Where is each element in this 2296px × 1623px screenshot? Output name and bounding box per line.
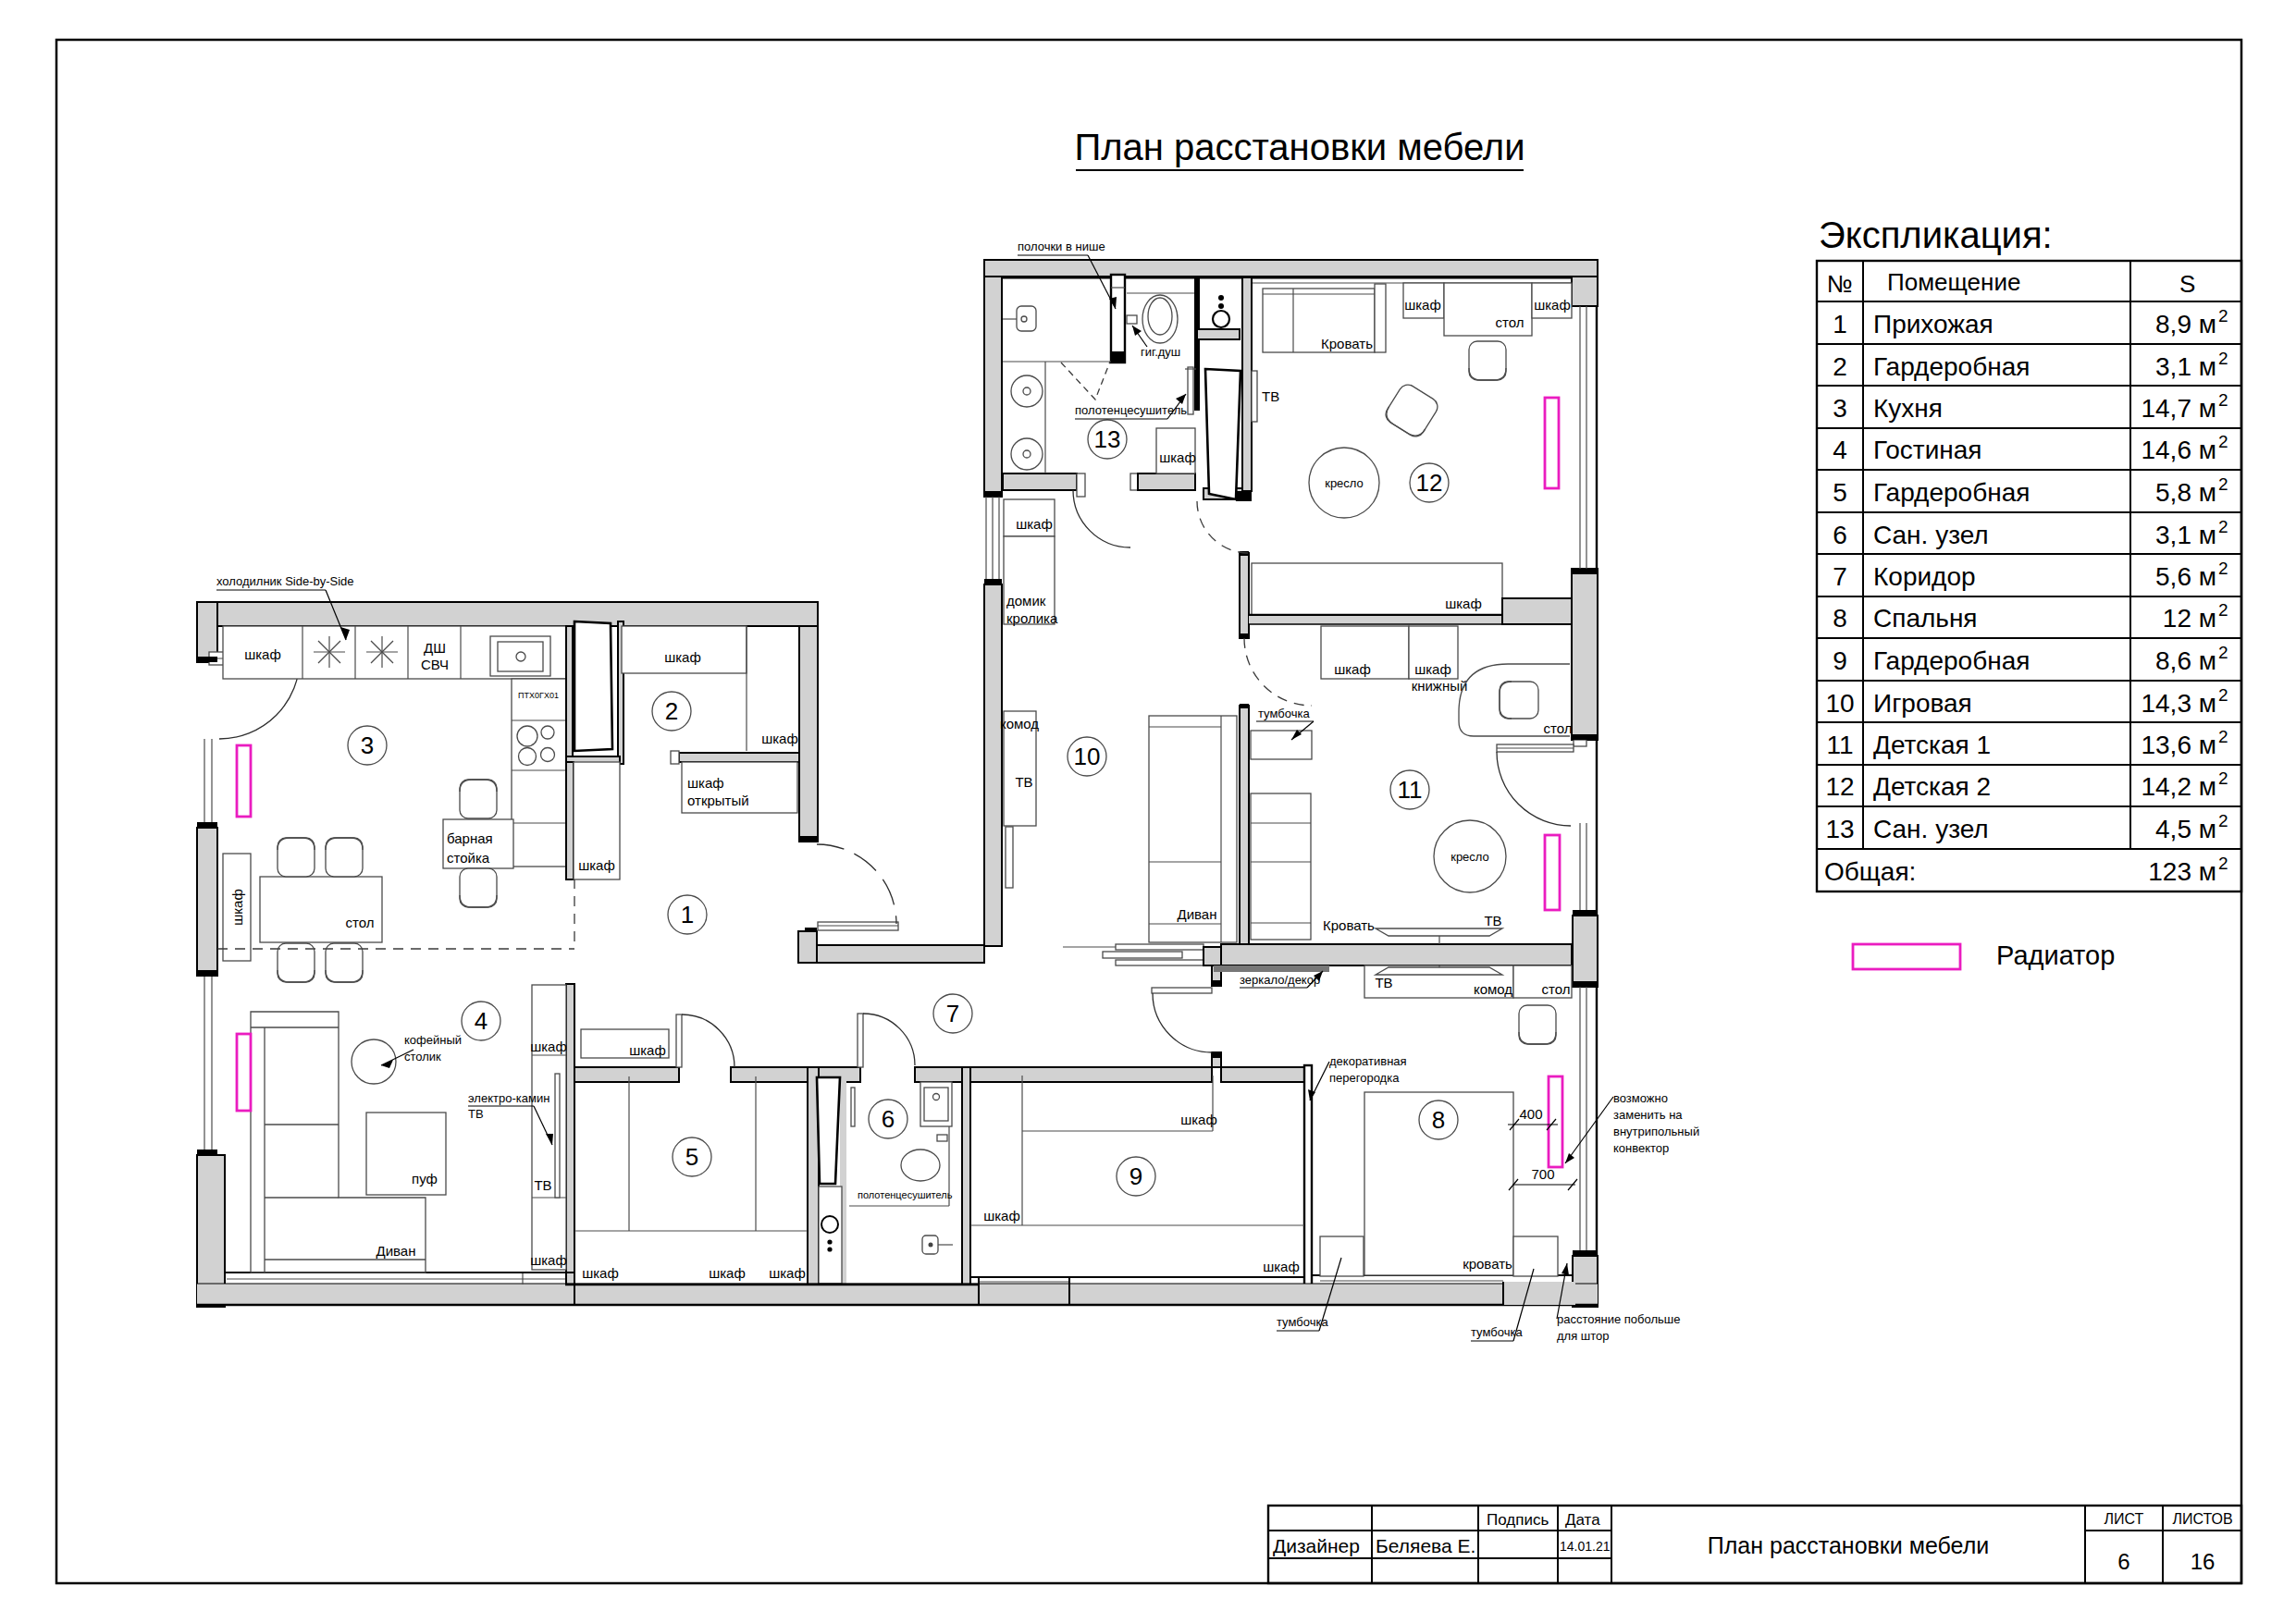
svg-text:2: 2: [1833, 352, 1847, 381]
svg-text:4,5 м: 4,5 м: [2155, 815, 2216, 843]
svg-text:Диван: Диван: [376, 1243, 416, 1259]
svg-text:Гардеробная: Гардеробная: [1873, 478, 2030, 507]
svg-text:ТВ: ТВ: [1375, 975, 1392, 990]
svg-text:Кровать: Кровать: [1321, 336, 1373, 351]
svg-text:2: 2: [2218, 600, 2228, 620]
svg-text:Радиатор: Радиатор: [1996, 941, 2115, 970]
svg-text:3,1 м: 3,1 м: [2155, 352, 2216, 381]
svg-text:9: 9: [1833, 646, 1847, 675]
svg-text:3: 3: [1833, 394, 1847, 423]
svg-text:шкаф: шкаф: [709, 1265, 746, 1281]
svg-text:внутрипольный: внутрипольный: [1613, 1125, 1699, 1138]
svg-text:заменить на: заменить на: [1613, 1108, 1683, 1122]
svg-text:3,1 м: 3,1 м: [2155, 521, 2216, 549]
svg-text:Дизайнер: Дизайнер: [1273, 1535, 1360, 1556]
svg-text:барная: барная: [447, 830, 493, 846]
svg-text:400: 400: [1519, 1106, 1542, 1122]
svg-text:11: 11: [1826, 731, 1853, 759]
svg-text:5,6 м: 5,6 м: [2155, 562, 2216, 591]
svg-text:6: 6: [2117, 1549, 2129, 1574]
svg-text:2: 2: [2218, 306, 2228, 326]
svg-text:Диван: Диван: [1178, 906, 1217, 922]
svg-text:10: 10: [1825, 689, 1854, 718]
svg-text:1: 1: [681, 901, 694, 928]
svg-text:декоративная: декоративная: [1329, 1054, 1407, 1068]
svg-text:7: 7: [946, 1000, 959, 1027]
svg-text:кресло: кресло: [1325, 476, 1364, 490]
svg-text:домик: домик: [1006, 593, 1046, 609]
svg-text:шкаф: шкаф: [1180, 1112, 1217, 1127]
svg-text:4: 4: [1833, 436, 1847, 464]
svg-text:2: 2: [2218, 390, 2228, 410]
svg-text:Кухня: Кухня: [1873, 394, 1943, 423]
svg-text:S: S: [2179, 270, 2195, 298]
svg-text:12 м: 12 м: [2163, 604, 2216, 633]
svg-text:13: 13: [1094, 425, 1121, 453]
svg-text:шкаф: шкаф: [983, 1208, 1020, 1223]
svg-text:стол: стол: [1496, 314, 1524, 330]
svg-text:Сан. узел: Сан. узел: [1873, 521, 1989, 549]
svg-text:13: 13: [1825, 815, 1854, 843]
svg-text:8: 8: [1833, 604, 1847, 633]
svg-text:7: 7: [1833, 562, 1847, 591]
svg-text:14,7 м: 14,7 м: [2141, 394, 2216, 423]
svg-text:Спальня: Спальня: [1873, 604, 1978, 633]
svg-text:шкаф: шкаф: [1534, 297, 1571, 313]
svg-text:перегородка: перегородка: [1329, 1071, 1400, 1085]
svg-text:шкаф: шкаф: [687, 775, 724, 791]
svg-text:ТВ: ТВ: [1015, 774, 1032, 790]
svg-text:2: 2: [2218, 559, 2228, 578]
svg-text:расстояние побольше: расстояние побольше: [1557, 1312, 1681, 1326]
svg-text:ЛИСТ: ЛИСТ: [2105, 1511, 2144, 1527]
svg-text:123 м: 123 м: [2148, 857, 2216, 886]
svg-text:для штор: для штор: [1557, 1329, 1610, 1343]
svg-text:10: 10: [1074, 743, 1101, 770]
svg-text:6: 6: [882, 1105, 895, 1133]
svg-text:пуф: пуф: [412, 1171, 438, 1187]
svg-text:700: 700: [1531, 1166, 1554, 1182]
svg-text:зеркало/декор: зеркало/декор: [1240, 973, 1320, 987]
svg-text:12: 12: [1825, 772, 1854, 801]
svg-text:полотенцесушитель: полотенцесушитель: [858, 1189, 953, 1200]
svg-text:комод: комод: [1474, 981, 1512, 997]
svg-text:стойка: стойка: [447, 850, 490, 866]
svg-text:шкаф: шкаф: [1263, 1259, 1300, 1274]
svg-text:ТВ: ТВ: [1484, 913, 1501, 928]
svg-text:2: 2: [2218, 685, 2228, 705]
svg-text:Общая:: Общая:: [1824, 857, 1916, 886]
svg-text:полочки в нише: полочки в нише: [1018, 240, 1105, 253]
svg-text:2: 2: [665, 697, 678, 725]
svg-text:шкаф: шкаф: [1016, 516, 1053, 532]
svg-text:тумбочка: тумбочка: [1471, 1325, 1523, 1339]
svg-text:2: 2: [2218, 432, 2228, 451]
svg-text:8,9 м: 8,9 м: [2155, 310, 2216, 338]
svg-text:14,2 м: 14,2 м: [2141, 772, 2216, 801]
svg-text:1: 1: [1833, 310, 1847, 338]
svg-text:2: 2: [2218, 768, 2228, 788]
svg-text:2: 2: [2218, 643, 2228, 662]
svg-text:16: 16: [2191, 1549, 2216, 1574]
svg-text:ТВ: ТВ: [468, 1107, 484, 1121]
svg-text:шкаф: шкаф: [582, 1265, 619, 1281]
svg-text:холодилник Side-by-Side: холодилник Side-by-Side: [216, 574, 354, 588]
svg-text:кролика: кролика: [1006, 610, 1058, 626]
svg-text:стол: стол: [346, 915, 375, 930]
svg-text:Гостиная: Гостиная: [1873, 436, 1982, 464]
svg-text:шкаф: шкаф: [629, 1042, 666, 1058]
svg-text:Коридор: Коридор: [1873, 562, 1976, 591]
svg-text:шкаф: шкаф: [664, 649, 701, 665]
svg-text:кровать: кровать: [1463, 1256, 1512, 1272]
svg-text:шкаф: шкаф: [761, 731, 798, 746]
svg-text:5,8 м: 5,8 м: [2155, 478, 2216, 507]
svg-text:План расстановки мебели: План расстановки мебели: [1708, 1532, 1989, 1558]
svg-text:тумбочка: тумбочка: [1277, 1315, 1328, 1329]
svg-text:8: 8: [1432, 1106, 1445, 1134]
svg-text:Гардеробная: Гардеробная: [1873, 352, 2030, 381]
svg-text:Экспликация:: Экспликация:: [1819, 215, 2053, 255]
svg-text:книжный: книжный: [1412, 678, 1468, 694]
svg-text:Дата: Дата: [1565, 1511, 1600, 1529]
svg-text:9: 9: [1129, 1162, 1142, 1190]
svg-text:2: 2: [2218, 349, 2228, 368]
svg-text:4: 4: [475, 1007, 488, 1035]
svg-text:12: 12: [1416, 469, 1443, 497]
svg-text:комод: комод: [1000, 716, 1039, 732]
svg-text:План расстановки мебели: План расстановки мебели: [1074, 127, 1524, 167]
svg-text:стол: стол: [1542, 981, 1571, 997]
svg-text:Детская 1: Детская 1: [1873, 731, 1991, 759]
svg-text:3: 3: [361, 732, 374, 759]
svg-text:электро-камин: электро-камин: [468, 1091, 549, 1105]
svg-text:кресло: кресло: [1450, 850, 1489, 864]
svg-text:ЛИСТОВ: ЛИСТОВ: [2172, 1511, 2232, 1527]
svg-text:тумбочка: тумбочка: [1258, 707, 1310, 720]
svg-text:Игровая: Игровая: [1873, 689, 1972, 718]
svg-text:шкаф: шкаф: [769, 1265, 806, 1281]
svg-text:2: 2: [2218, 727, 2228, 746]
svg-text:ТВ: ТВ: [1262, 388, 1279, 404]
svg-text:Подпись: Подпись: [1487, 1511, 1549, 1529]
svg-text:Сан. узел: Сан. узел: [1873, 815, 1989, 843]
svg-text:2: 2: [2218, 474, 2228, 494]
svg-text:№: №: [1827, 270, 1853, 298]
svg-text:шкаф: шкаф: [244, 646, 281, 662]
svg-text:ТВ: ТВ: [534, 1177, 551, 1193]
svg-text:возможно: возможно: [1613, 1091, 1668, 1105]
svg-text:2: 2: [2218, 517, 2228, 536]
svg-text:5: 5: [685, 1143, 698, 1171]
svg-text:8,6 м: 8,6 м: [2155, 646, 2216, 675]
svg-text:14,3 м: 14,3 м: [2141, 689, 2216, 718]
svg-text:Беляева Е.: Беляева Е.: [1376, 1535, 1475, 1556]
svg-text:ПТХ0ГХ01: ПТХ0ГХ01: [518, 691, 559, 700]
svg-text:Прихожая: Прихожая: [1873, 310, 1994, 338]
svg-text:Детская 2: Детская 2: [1873, 772, 1991, 801]
svg-text:2: 2: [2218, 854, 2228, 873]
svg-text:стол: стол: [1544, 720, 1573, 736]
svg-text:шкаф: шкаф: [229, 889, 245, 926]
svg-text:Кровать: Кровать: [1323, 917, 1375, 933]
svg-text:11: 11: [1398, 776, 1423, 804]
svg-text:конвектор: конвектор: [1613, 1141, 1669, 1155]
svg-text:шкаф: шкаф: [578, 857, 615, 873]
svg-text:СВЧ: СВЧ: [421, 657, 449, 672]
svg-text:шкаф: шкаф: [1334, 661, 1371, 677]
svg-text:Гардеробная: Гардеробная: [1873, 646, 2030, 675]
svg-text:14.01.21: 14.01.21: [1560, 1539, 1611, 1554]
svg-text:ДШ: ДШ: [424, 640, 446, 656]
svg-text:шкаф: шкаф: [1414, 661, 1451, 677]
svg-text:шкаф: шкаф: [1159, 449, 1196, 465]
svg-text:шкаф: шкаф: [1404, 297, 1441, 313]
svg-text:13,6 м: 13,6 м: [2141, 731, 2216, 759]
svg-text:14,6 м: 14,6 м: [2141, 436, 2216, 464]
svg-text:шкаф: шкаф: [1445, 596, 1482, 611]
svg-text:Помещение: Помещение: [1887, 268, 2020, 296]
svg-text:кофейный: кофейный: [404, 1033, 462, 1047]
svg-text:2: 2: [2218, 811, 2228, 830]
svg-text:5: 5: [1833, 478, 1847, 507]
svg-text:6: 6: [1833, 521, 1847, 549]
svg-text:шкаф: шкаф: [530, 1252, 567, 1268]
svg-text:шкаф: шкаф: [530, 1039, 567, 1054]
svg-text:открытый: открытый: [687, 793, 749, 808]
